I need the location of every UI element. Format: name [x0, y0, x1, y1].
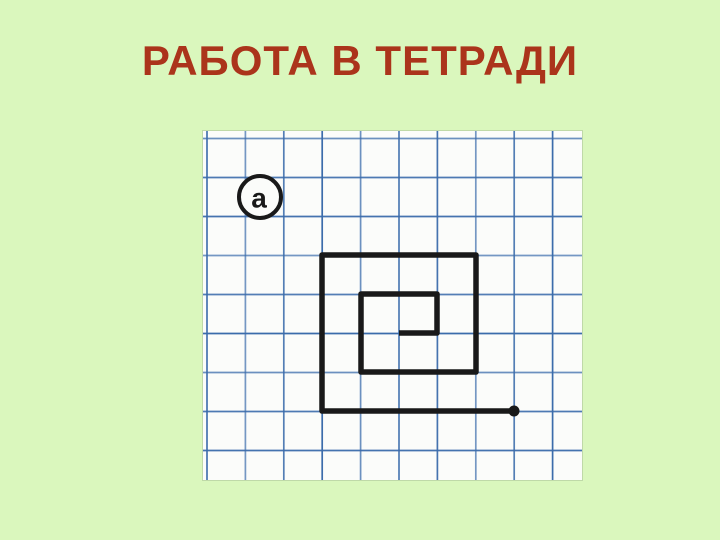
spiral-drawing	[322, 255, 520, 417]
squared-paper-figure: а	[203, 131, 582, 480]
task-label-circle: а	[239, 176, 281, 218]
task-label-letter: а	[251, 183, 267, 214]
page-title: РАБОТА В ТЕТРАДИ	[0, 37, 720, 85]
slide: РАБОТА В ТЕТРАДИ а	[0, 0, 720, 540]
spiral-start-dot	[509, 406, 520, 417]
notebook-paper: а	[203, 131, 582, 480]
